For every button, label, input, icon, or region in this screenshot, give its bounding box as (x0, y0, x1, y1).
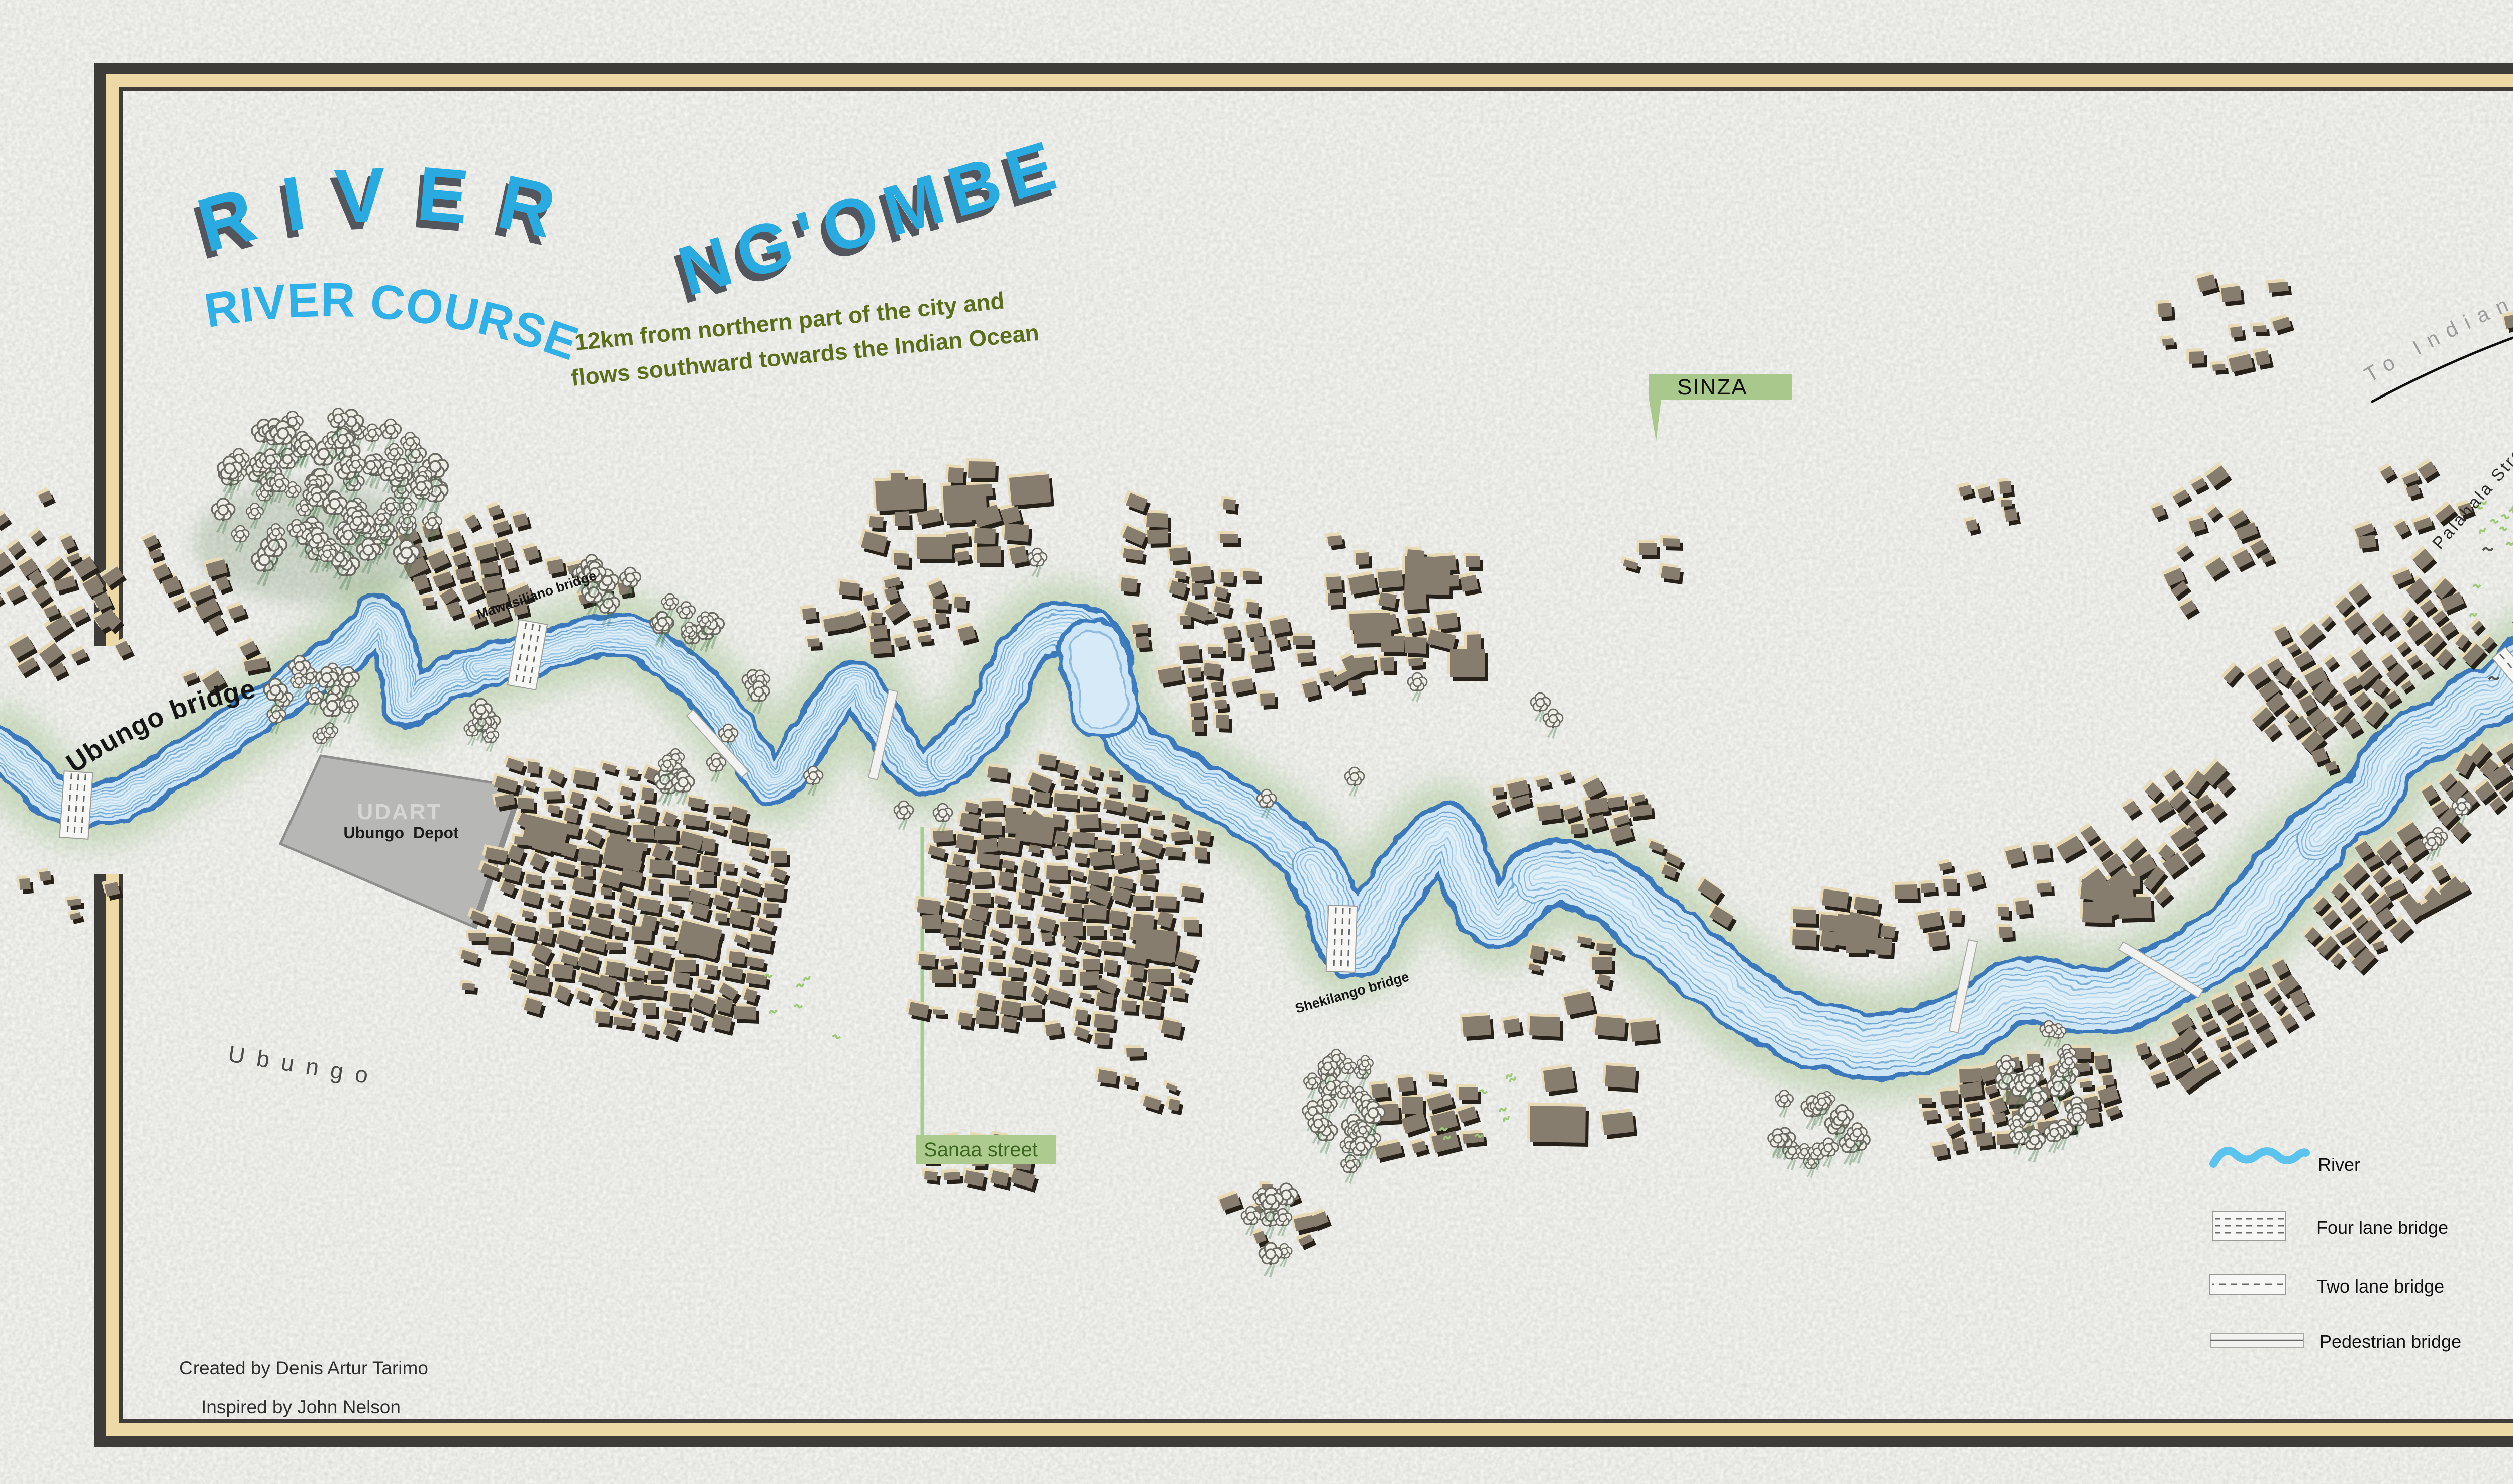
svg-text:Two lane bridge: Two lane bridge (2316, 1276, 2444, 1297)
svg-text:Inspired by John Nelson: Inspired by John Nelson (201, 1397, 401, 1417)
svg-text:River: River (2318, 1154, 2360, 1175)
svg-text:UDART: UDART (357, 800, 442, 824)
svg-text:SINZA: SINZA (1677, 375, 1748, 400)
svg-text:Created by Denis Artur Tarimo: Created by Denis Artur Tarimo (179, 1358, 428, 1378)
svg-text:Four lane bridge: Four lane bridge (2316, 1217, 2448, 1238)
svg-text:Ubungo Depot: Ubungo Depot (343, 824, 459, 842)
svg-text:Sanaa street: Sanaa street (924, 1139, 1038, 1161)
svg-text:Pedestrian bridge: Pedestrian bridge (2319, 1331, 2461, 1352)
